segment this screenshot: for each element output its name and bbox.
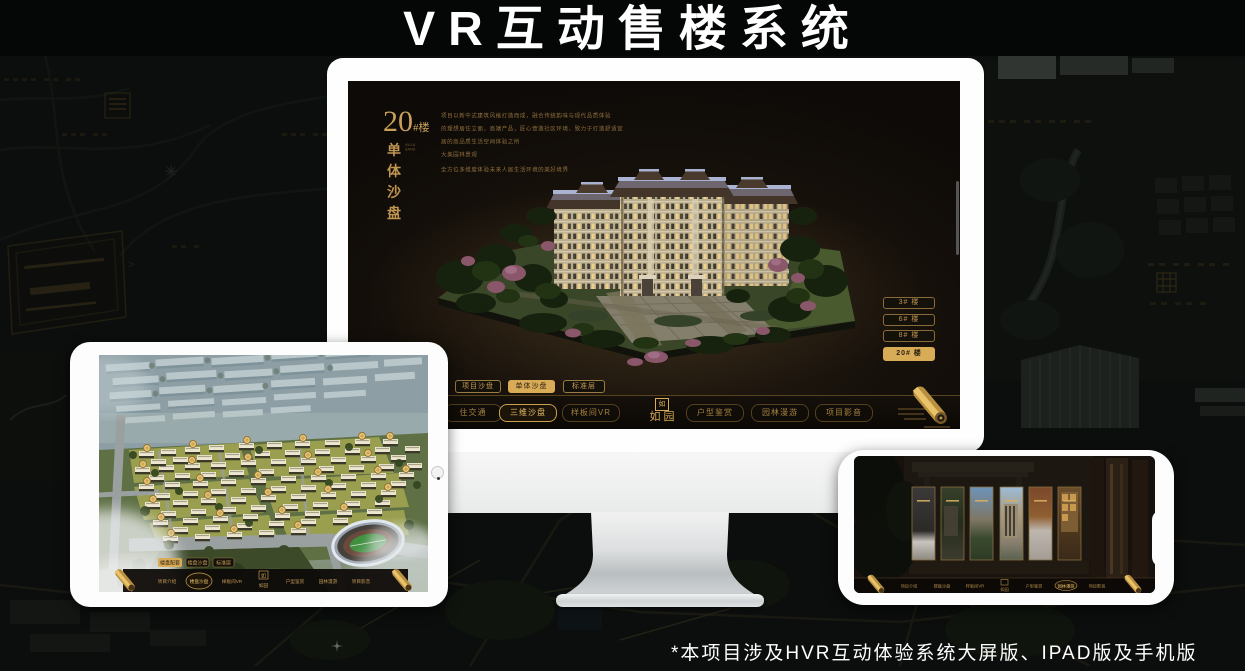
svg-text:楼盘配套: 楼盘配套 — [160, 560, 180, 567]
svg-text:园林漫游: 园林漫游 — [319, 578, 338, 585]
svg-text:园林漫游: 园林漫游 — [1058, 583, 1076, 590]
svg-text:楼盘沙盘: 楼盘沙盘 — [187, 560, 207, 567]
svg-text:样板间VR: 样板间VR — [222, 578, 243, 585]
svg-text:楼盘沙盘: 楼盘沙盘 — [190, 578, 209, 585]
svg-text:项目介绍: 项目介绍 — [158, 578, 177, 585]
svg-text:样板间VR: 样板间VR — [966, 583, 984, 590]
svg-text:如园: 如园 — [1000, 586, 1008, 593]
svg-text:>: > — [128, 259, 134, 271]
svg-text:如园: 如园 — [259, 582, 269, 589]
svg-text:如: 如 — [261, 573, 266, 580]
svg-text:项目影音: 项目影音 — [1089, 583, 1106, 590]
svg-text:户型鉴赏: 户型鉴赏 — [1026, 583, 1043, 590]
svg-text:项目介绍: 项目介绍 — [901, 583, 918, 590]
svg-text:标准层: 标准层 — [216, 560, 231, 567]
svg-text:户型鉴赏: 户型鉴赏 — [286, 578, 305, 585]
svg-text:项目影音: 项目影音 — [352, 578, 371, 585]
svg-text:楼盘沙盘: 楼盘沙盘 — [934, 583, 951, 590]
